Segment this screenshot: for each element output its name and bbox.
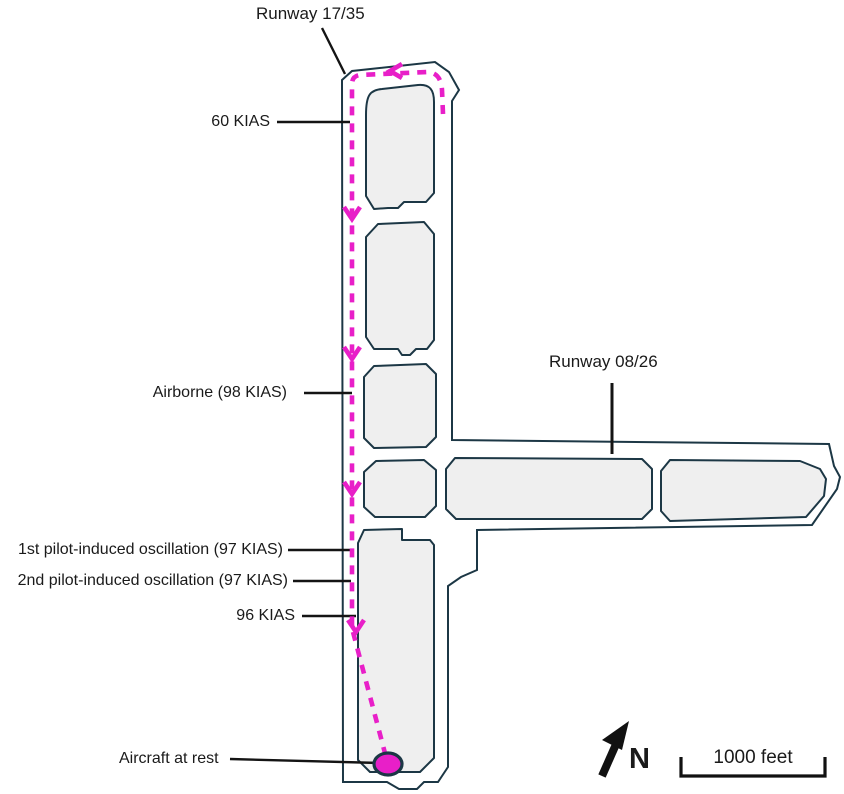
runway-0826-pad-east [661, 460, 826, 521]
runway-1735-pad-south [358, 529, 434, 772]
runway-diagram-figure: Runway 17/35 60 KIAS Airborne (98 KIAS) … [0, 0, 844, 794]
label-airborne-98-kias: Airborne (98 KIAS) [153, 385, 287, 401]
north-arrow-icon [602, 721, 629, 776]
label-runway-17-35: Runway 17/35 [256, 5, 365, 22]
leader-runway-1735 [322, 28, 345, 74]
runway-intersection-pad [364, 460, 436, 517]
label-north-n: N [629, 745, 650, 774]
runway-1735-pad-3 [364, 364, 436, 448]
label-runway-08-26: Runway 08/26 [549, 353, 658, 370]
airport-diagram-canvas [0, 0, 844, 794]
label-1st-oscillation: 1st pilot-induced oscillation (97 KIAS) [18, 542, 283, 558]
label-96-kias: 96 KIAS [236, 608, 295, 624]
label-2nd-oscillation: 2nd pilot-induced oscillation (97 KIAS) [18, 573, 288, 589]
runway-0826-pad-west [446, 458, 652, 519]
aircraft-rest-marker [374, 753, 402, 775]
label-aircraft-at-rest: Aircraft at rest [119, 751, 219, 767]
label-60-kias: 60 KIAS [211, 114, 270, 130]
runway-1735-pad-north [366, 85, 434, 209]
runway-1735-pad-2 [366, 222, 434, 355]
label-scale-1000-feet: 1000 feet [695, 748, 811, 767]
